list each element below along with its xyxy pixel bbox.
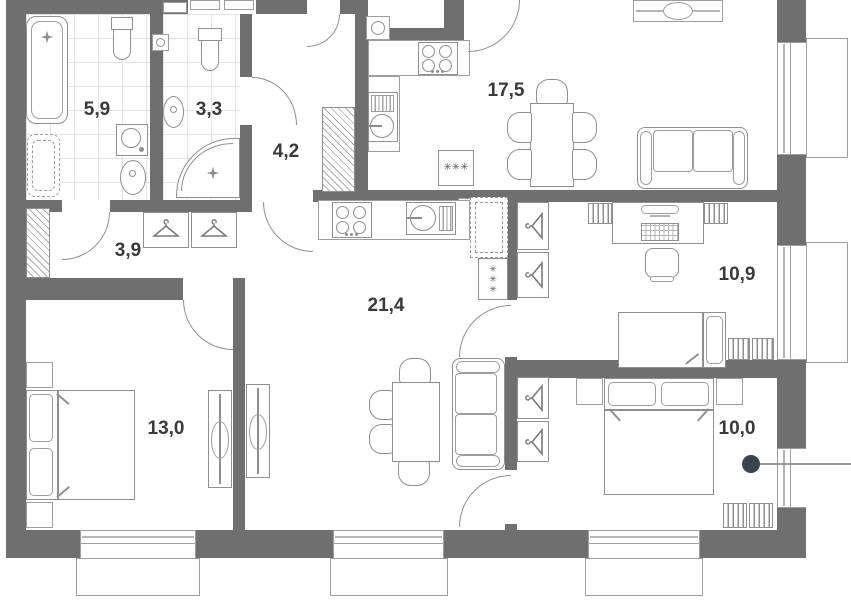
- door-arc-entry: [307, 14, 340, 47]
- door-arc-bathroom-small: [252, 77, 297, 125]
- tv-icon: [663, 2, 693, 20]
- bidet: [120, 160, 146, 195]
- desk-chair: [645, 248, 679, 278]
- door-arc-living-kitchen: [468, 0, 520, 52]
- door-arc-kitchen-living: [263, 202, 313, 252]
- keyboard: [641, 223, 679, 241]
- room-area-label: 13,0: [148, 418, 185, 440]
- pillow: [29, 448, 53, 496]
- sofa-armrest: [456, 361, 500, 373]
- wall: [505, 357, 517, 470]
- window-reveal: [333, 544, 444, 558]
- chair: [398, 461, 430, 486]
- appliance-marks: ✳✳✳: [478, 260, 508, 300]
- dresser: [749, 503, 773, 528]
- bidet-drain: [129, 170, 136, 177]
- hanger-icon: [524, 261, 546, 289]
- room-area-label: 17,5: [488, 80, 525, 102]
- hanger-icon: [524, 384, 546, 412]
- chair: [507, 149, 532, 180]
- washbasin-drain: [170, 106, 177, 113]
- dining-table: [392, 382, 440, 462]
- wall: [777, 360, 806, 448]
- point-marker-line: [751, 463, 851, 465]
- pillow: [608, 382, 656, 406]
- wall: [6, 278, 183, 300]
- nightstand: [716, 378, 743, 405]
- balcony: [806, 242, 848, 363]
- balcony: [806, 38, 848, 158]
- dining-table: [530, 103, 574, 187]
- wall: [390, 28, 448, 40]
- wall: [233, 278, 245, 530]
- door-arc-bathroom-large: [62, 212, 110, 260]
- window-glazing: [335, 536, 442, 538]
- dresser: [728, 338, 750, 360]
- blanket-edge: [605, 409, 713, 411]
- blanket-edge: [57, 391, 59, 499]
- shaft-hatched: [322, 107, 355, 192]
- mirror-oval: [249, 414, 267, 450]
- monitor-stand: [650, 215, 670, 217]
- room-area-label: 3,3: [196, 99, 222, 121]
- chair: [572, 112, 597, 143]
- chair: [369, 424, 393, 454]
- room-area-label: 10,9: [719, 264, 756, 286]
- nightstand: [26, 502, 53, 528]
- room-area-label: 5,9: [84, 99, 110, 121]
- sofa-cushion: [455, 414, 497, 455]
- wall: [444, 0, 464, 40]
- window-glazing: [783, 44, 785, 153]
- pillow: [661, 382, 709, 406]
- room-area-label: 21,4: [368, 295, 405, 317]
- wall: [6, 0, 188, 14]
- toilet-bowl: [201, 40, 219, 71]
- dresser: [723, 503, 747, 528]
- sparkle-icon: [206, 166, 220, 180]
- neighbour-fragment: [190, 0, 220, 10]
- washbasin-bowl: [121, 128, 141, 148]
- washing-machine-inner: [32, 140, 55, 191]
- dresser: [752, 338, 774, 360]
- sofa-armrest: [733, 131, 745, 185]
- balcony: [76, 558, 200, 596]
- vent-circle: [371, 21, 385, 35]
- washbasin-drain: [139, 147, 144, 152]
- wall: [240, 125, 252, 200]
- stove: [418, 42, 458, 75]
- wall: [700, 530, 806, 558]
- kitchen-sink: [368, 92, 398, 142]
- sofa-armrest: [456, 455, 500, 467]
- vent-circle: [156, 38, 165, 47]
- hanger-icon: [152, 218, 180, 240]
- chair: [572, 149, 597, 180]
- window-glazing: [783, 450, 785, 506]
- sofa-cushion: [455, 373, 497, 414]
- wall: [444, 530, 588, 558]
- window-reveal: [791, 42, 806, 155]
- wall: [110, 200, 252, 212]
- nightstand: [576, 378, 603, 405]
- wall: [777, 0, 806, 42]
- room-area-label: 4,2: [273, 141, 299, 163]
- kitchen-sink: [406, 202, 456, 235]
- door-arc-bedroom-study: [459, 305, 511, 357]
- wall-shaft: [163, 2, 187, 13]
- sofa-cushion: [693, 130, 733, 172]
- hanger-icon: [524, 428, 546, 456]
- desk-unit: [704, 203, 728, 224]
- balcony: [585, 558, 703, 596]
- balcony: [330, 558, 448, 596]
- room-area-label: 10,0: [719, 418, 756, 440]
- sofa-cushion: [653, 130, 693, 172]
- mirror-oval: [211, 421, 229, 459]
- window-reveal: [791, 448, 806, 508]
- bed-divider: [702, 313, 704, 367]
- pillow: [706, 316, 723, 364]
- wall: [6, 530, 80, 558]
- window-reveal: [588, 544, 700, 558]
- chair: [536, 79, 568, 104]
- window-glazing: [783, 247, 785, 358]
- window-reveal: [80, 544, 196, 558]
- monitor: [641, 205, 679, 214]
- wall: [777, 155, 806, 245]
- room-area-label: 3,9: [115, 240, 141, 262]
- chair: [399, 358, 431, 383]
- sofa-armrest: [640, 131, 652, 185]
- wall: [256, 0, 307, 14]
- door-arc-bedroom-master: [183, 300, 233, 350]
- chair: [369, 390, 393, 420]
- desk-unit: [588, 203, 612, 224]
- wall: [240, 14, 252, 77]
- fridge-inner: [475, 202, 503, 253]
- point-marker: [742, 455, 760, 473]
- chair: [507, 112, 532, 143]
- desk-chair-back: [650, 276, 674, 282]
- toilet-bowl: [113, 29, 131, 60]
- wardrobe-niche: [26, 208, 50, 278]
- wall: [196, 530, 333, 558]
- window-glazing: [590, 536, 698, 538]
- door-arc-bedroom-second: [459, 475, 511, 527]
- window-glazing: [82, 536, 194, 538]
- hanger-icon: [524, 212, 546, 240]
- sparkle-icon: [40, 30, 54, 44]
- appliance-marks: ✳✳✳: [438, 150, 474, 186]
- nightstand: [26, 362, 53, 388]
- pillow: [29, 394, 53, 442]
- hanger-icon: [200, 218, 228, 240]
- stove: [332, 202, 372, 238]
- neighbour-fragment: [224, 0, 254, 10]
- window-reveal: [791, 245, 806, 360]
- floor-plan: ✳✳✳ ✳✳✳: [0, 0, 851, 600]
